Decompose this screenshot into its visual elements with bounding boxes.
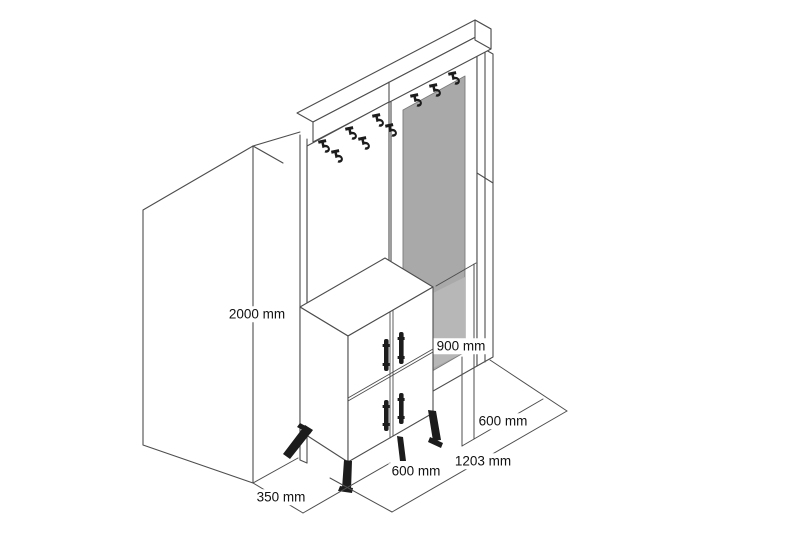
isometric-drawing bbox=[0, 0, 800, 533]
dimension-label-right-section-depth: 600 mm bbox=[476, 413, 531, 429]
dim-side-depth-line bbox=[253, 458, 303, 513]
dim-right-section-depth-line bbox=[462, 357, 567, 446]
dimension-label-cabinet-height: 900 mm bbox=[434, 338, 489, 354]
dimension-label-total-width: 1203 mm bbox=[452, 453, 514, 469]
dimension-diagram: 2000 mm 900 mm 600 mm 1203 mm 600 mm 350… bbox=[0, 0, 800, 533]
cabinet-leg bbox=[283, 423, 313, 459]
right-side-panel bbox=[477, 45, 493, 366]
dimension-label-cabinet-width: 600 mm bbox=[389, 463, 444, 479]
cabinet-leg bbox=[397, 436, 406, 461]
cabinet-leg bbox=[428, 410, 443, 448]
dimension-label-side-depth: 350 mm bbox=[254, 489, 309, 505]
dimension-label-total-height: 2000 mm bbox=[226, 306, 288, 322]
